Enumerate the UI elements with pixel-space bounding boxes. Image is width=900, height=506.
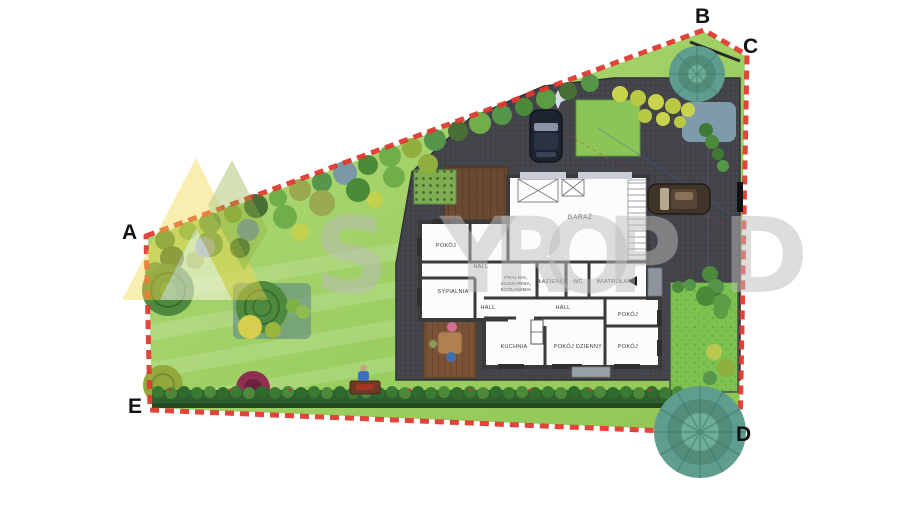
car-dark [530, 110, 562, 162]
patio-chair [446, 352, 456, 362]
terrace-step [572, 367, 610, 377]
room-label-pralnia: PRALNIA, [504, 275, 527, 281]
corner-tree-d [654, 386, 746, 478]
room-label-wiatrolap: WIATROŁAP [597, 279, 632, 285]
corner-label-c: C [743, 36, 758, 57]
vegetable-garden [414, 170, 456, 204]
room-label-pokoj-dzienny: POKÓJ DZIENNY [554, 343, 602, 350]
patio-chair [429, 340, 437, 348]
room-label-sypialnia: SYPIALNIA [437, 289, 468, 295]
room-label-pokoj: POKÓJ [618, 343, 638, 350]
room-label-pokoj: POKÓJ [618, 311, 638, 318]
lawn-patch [576, 100, 640, 156]
room-label-suszarnia: SUSZARNIA, [501, 281, 532, 287]
person [358, 371, 369, 381]
room-label-wc: WC [573, 279, 583, 285]
room-label-garaz: GARAŻ [568, 212, 593, 221]
garage-door [578, 172, 632, 179]
flower-bed [233, 281, 311, 339]
room-label-pokoj: POKÓJ [436, 242, 456, 249]
wood-terrace-south [424, 316, 476, 378]
site-plan-canvas: GARAŻ POKÓJ HALL SYPIALNIA HALL PRALNIA,… [0, 0, 900, 506]
corner-label-a: A [122, 222, 137, 243]
patio-chair [447, 322, 457, 332]
corner-label-b: B [695, 6, 710, 27]
car-bronze [648, 184, 710, 214]
site-plan-page: GARAŻ POKÓJ HALL SYPIALNIA HALL PRALNIA,… [0, 0, 900, 506]
room-label-hall: HALL [474, 264, 489, 270]
gate [737, 182, 743, 212]
patio-table [438, 332, 462, 354]
room-label-hall: HALL [481, 305, 496, 311]
room-label-hall: HALL [556, 305, 571, 311]
room-label-kotlownia: KOTŁOWNIA [501, 287, 532, 293]
garage-door [520, 172, 566, 179]
room-label-lazienka: ŁAZIENKA [539, 279, 568, 285]
stairs-hatch [628, 180, 646, 260]
corner-label-e: E [128, 396, 142, 417]
corner-tree-b [669, 46, 725, 102]
entry-step [648, 268, 662, 296]
room-label-kuchnia: KUCHNIA [501, 344, 528, 350]
corner-label-d: D [736, 424, 751, 445]
